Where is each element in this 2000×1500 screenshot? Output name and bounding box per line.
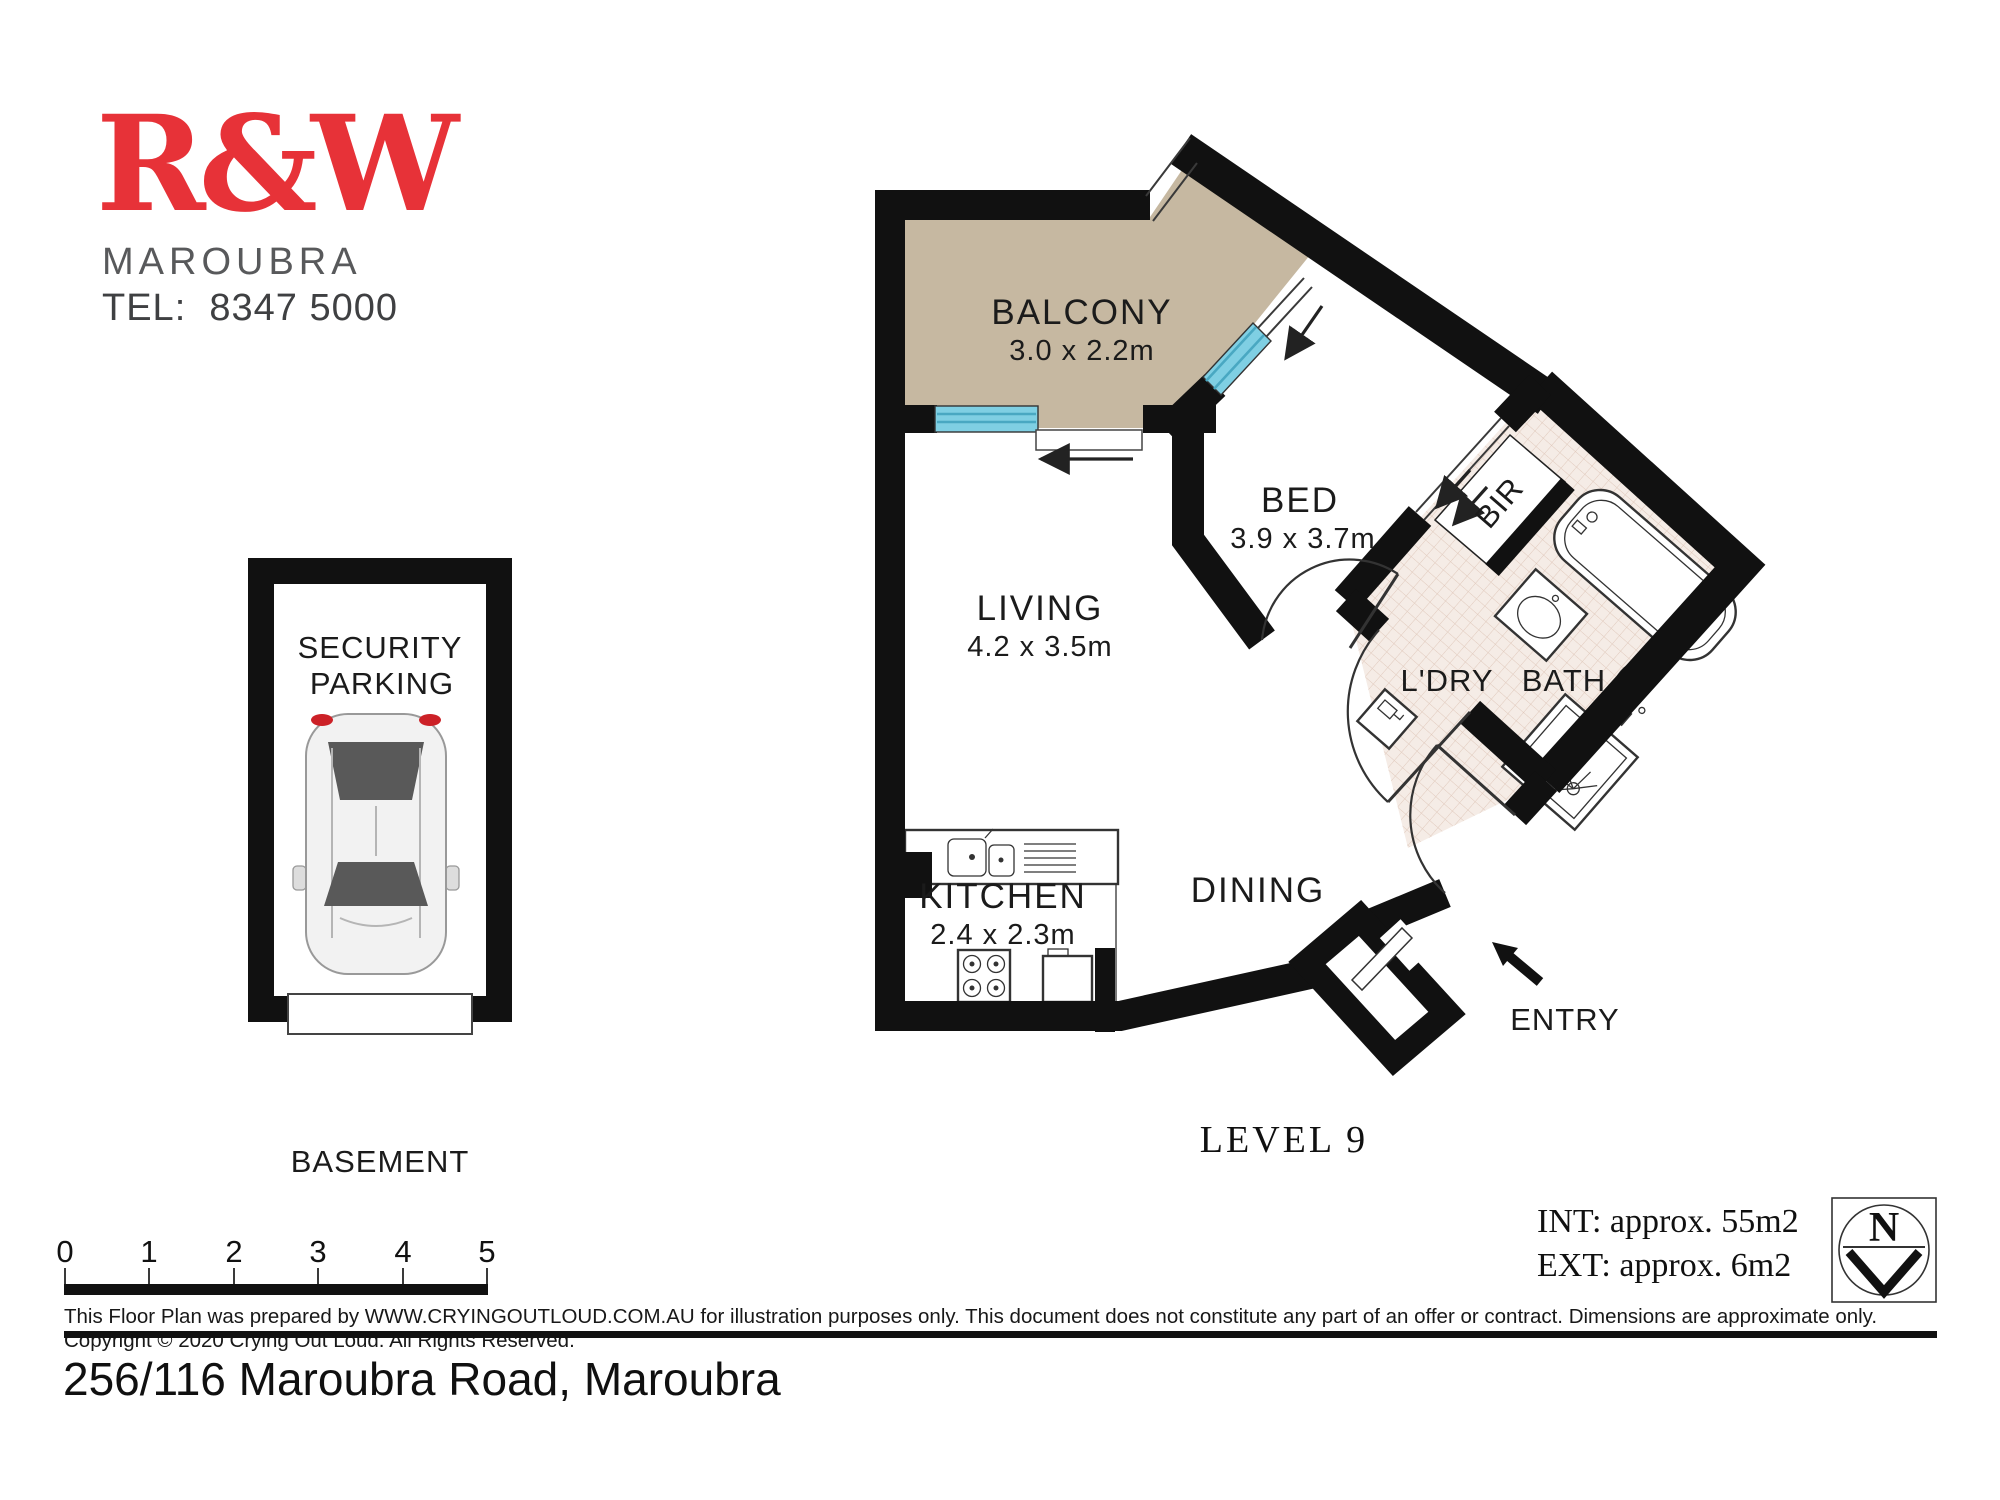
kitchen-label: KITCHEN bbox=[919, 877, 1087, 916]
balcony-window bbox=[935, 406, 1038, 432]
disclaimer-text: This Floor Plan was prepared by WWW.CRYI… bbox=[64, 1305, 1938, 1353]
scale-tick-0: 0 bbox=[56, 1234, 73, 1269]
balcony-door-sill bbox=[1036, 430, 1142, 450]
scale-tick-5: 5 bbox=[478, 1234, 495, 1269]
property-address: 256/116 Maroubra Road, Maroubra bbox=[63, 1352, 781, 1406]
parking-space: SECURITY PARKING bbox=[261, 571, 499, 1034]
area-summary: INT: approx. 55m2 EXT: approx. 6m2 bbox=[1537, 1200, 1799, 1287]
entry-label: ENTRY bbox=[1510, 1002, 1620, 1037]
dining-label: DINING bbox=[1191, 871, 1326, 910]
basement-caption: BASEMENT bbox=[291, 1144, 470, 1179]
bath-label: BATH bbox=[1522, 663, 1606, 698]
garage-door bbox=[288, 994, 472, 1034]
footer-divider bbox=[64, 1331, 1937, 1338]
bed-dims: 3.9 x 3.7m bbox=[1230, 523, 1375, 555]
bed-label: BED bbox=[1261, 481, 1339, 520]
north-compass-icon: N bbox=[1832, 1198, 1936, 1302]
kitchen-appliance bbox=[1043, 949, 1092, 1002]
north-label: N bbox=[1869, 1205, 1899, 1251]
entry-arrow-icon bbox=[1492, 942, 1540, 982]
scale-bar: 0 1 2 3 4 5 bbox=[56, 1234, 495, 1295]
scale-tick-3: 3 bbox=[309, 1234, 326, 1269]
level-label: LEVEL 9 bbox=[1200, 1119, 1368, 1161]
balcony-dims: 3.0 x 2.2m bbox=[1009, 335, 1154, 367]
car-illustration bbox=[293, 714, 459, 974]
scale-tick-2: 2 bbox=[225, 1234, 242, 1269]
kitchen-dims: 2.4 x 2.3m bbox=[930, 919, 1075, 951]
parking-label-line1: SECURITY bbox=[298, 630, 463, 665]
living-label: LIVING bbox=[977, 589, 1104, 628]
internal-area: INT: approx. 55m2 bbox=[1537, 1200, 1799, 1244]
external-area: EXT: approx. 6m2 bbox=[1537, 1244, 1799, 1288]
scale-tick-4: 4 bbox=[394, 1234, 411, 1269]
wall-kitchen-return bbox=[1095, 948, 1115, 1032]
living-dims: 4.2 x 3.5m bbox=[967, 631, 1112, 663]
parking-label-line2: PARKING bbox=[310, 666, 454, 701]
balcony-label: BALCONY bbox=[991, 293, 1172, 332]
scale-tick-1: 1 bbox=[140, 1234, 157, 1269]
stove-icon bbox=[958, 950, 1010, 1002]
laundry-label: L'DRY bbox=[1400, 663, 1493, 698]
